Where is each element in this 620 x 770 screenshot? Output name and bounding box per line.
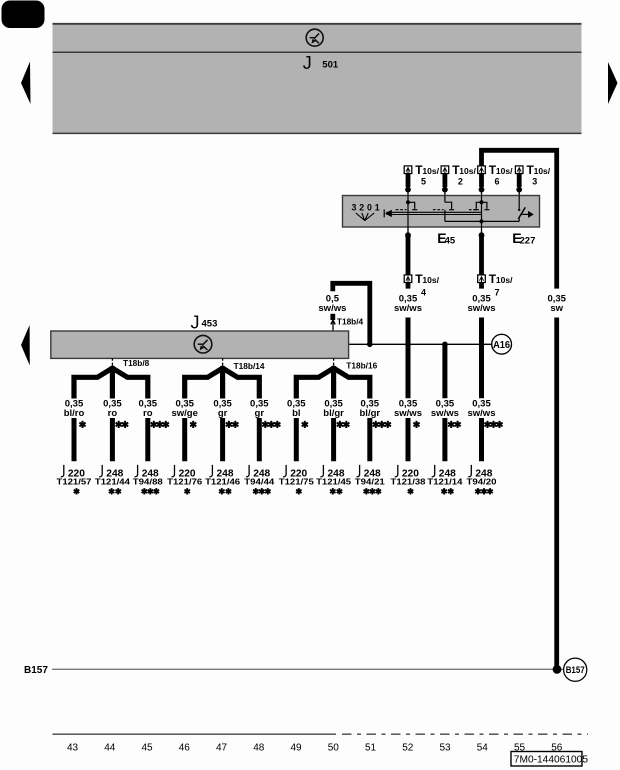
svg-text:T121/14: T121/14 xyxy=(427,476,462,486)
svg-text:10s/: 10s/ xyxy=(459,166,476,176)
svg-text:7M0-144061005: 7M0-144061005 xyxy=(514,755,589,766)
svg-text:T121/57: T121/57 xyxy=(57,476,92,486)
svg-text:T121/45: T121/45 xyxy=(316,476,351,486)
svg-text:sw/ws: sw/ws xyxy=(394,408,422,419)
svg-text:bl: bl xyxy=(292,408,300,419)
svg-text:T18b/8: T18b/8 xyxy=(123,358,150,368)
svg-text:B157: B157 xyxy=(24,665,48,676)
svg-text:T121/46: T121/46 xyxy=(205,476,240,486)
svg-text:T94/88: T94/88 xyxy=(133,476,163,486)
svg-text:sw/ws: sw/ws xyxy=(394,303,422,314)
svg-text:T94/21: T94/21 xyxy=(355,476,385,486)
svg-text:45: 45 xyxy=(141,743,153,754)
svg-text:3 2 0 1: 3 2 0 1 xyxy=(352,202,380,212)
svg-text:10s/: 10s/ xyxy=(496,275,513,285)
svg-text:sw/ws: sw/ws xyxy=(431,408,459,419)
svg-text:45: 45 xyxy=(445,236,456,247)
svg-text:3: 3 xyxy=(532,176,537,186)
svg-text:501: 501 xyxy=(322,59,339,70)
svg-text:T121/44: T121/44 xyxy=(95,476,130,486)
svg-text:gr: gr xyxy=(218,408,228,419)
svg-text:T18b/4: T18b/4 xyxy=(337,317,364,327)
svg-text:T121/75: T121/75 xyxy=(279,476,314,486)
svg-text:bl/gr: bl/gr xyxy=(323,408,344,419)
svg-text:7: 7 xyxy=(494,287,499,297)
svg-text:T121/76: T121/76 xyxy=(167,476,202,486)
svg-text:B157: B157 xyxy=(566,665,585,675)
svg-text:48: 48 xyxy=(253,743,265,754)
svg-text:T94/20: T94/20 xyxy=(467,476,497,486)
svg-text:49: 49 xyxy=(290,743,302,754)
svg-text:2: 2 xyxy=(458,176,463,186)
svg-text:53: 53 xyxy=(439,743,451,754)
svg-text:10s/: 10s/ xyxy=(422,275,439,285)
svg-text:5: 5 xyxy=(421,176,426,186)
svg-text:453: 453 xyxy=(202,318,218,329)
svg-text:gr: gr xyxy=(255,408,265,419)
svg-text:T121/38: T121/38 xyxy=(391,476,426,486)
svg-text:10s/: 10s/ xyxy=(496,166,513,176)
svg-text:227: 227 xyxy=(520,236,536,247)
svg-text:J: J xyxy=(191,313,200,333)
svg-text:sw: sw xyxy=(550,303,563,314)
svg-text:ro: ro xyxy=(143,408,153,419)
svg-text:sw/ws: sw/ws xyxy=(468,408,496,419)
svg-text:6: 6 xyxy=(494,176,499,186)
svg-text:43: 43 xyxy=(67,743,79,754)
svg-text:10s/: 10s/ xyxy=(534,166,551,176)
svg-text:46: 46 xyxy=(179,743,191,754)
svg-text:47: 47 xyxy=(216,743,228,754)
svg-text:T94/44: T94/44 xyxy=(244,476,274,486)
svg-text:sw/ws: sw/ws xyxy=(468,303,496,314)
svg-text:50: 50 xyxy=(328,743,340,754)
svg-text:T18b/16: T18b/16 xyxy=(346,361,377,371)
svg-text:10s/: 10s/ xyxy=(422,166,439,176)
svg-text:J: J xyxy=(303,53,312,73)
svg-text:bl/gr: bl/gr xyxy=(360,408,381,419)
svg-text:51: 51 xyxy=(365,743,377,754)
svg-text:44: 44 xyxy=(104,743,116,754)
svg-text:sw/ws: sw/ws xyxy=(318,303,346,314)
svg-text:sw/ge: sw/ge xyxy=(171,408,197,419)
svg-text:ro: ro xyxy=(108,408,118,419)
svg-text:4: 4 xyxy=(421,287,426,297)
svg-text:52: 52 xyxy=(402,743,414,754)
svg-text:T18b/14: T18b/14 xyxy=(234,361,265,371)
svg-text:bl/ro: bl/ro xyxy=(64,408,85,419)
svg-text:54: 54 xyxy=(477,743,489,754)
svg-text:A16: A16 xyxy=(493,340,510,351)
